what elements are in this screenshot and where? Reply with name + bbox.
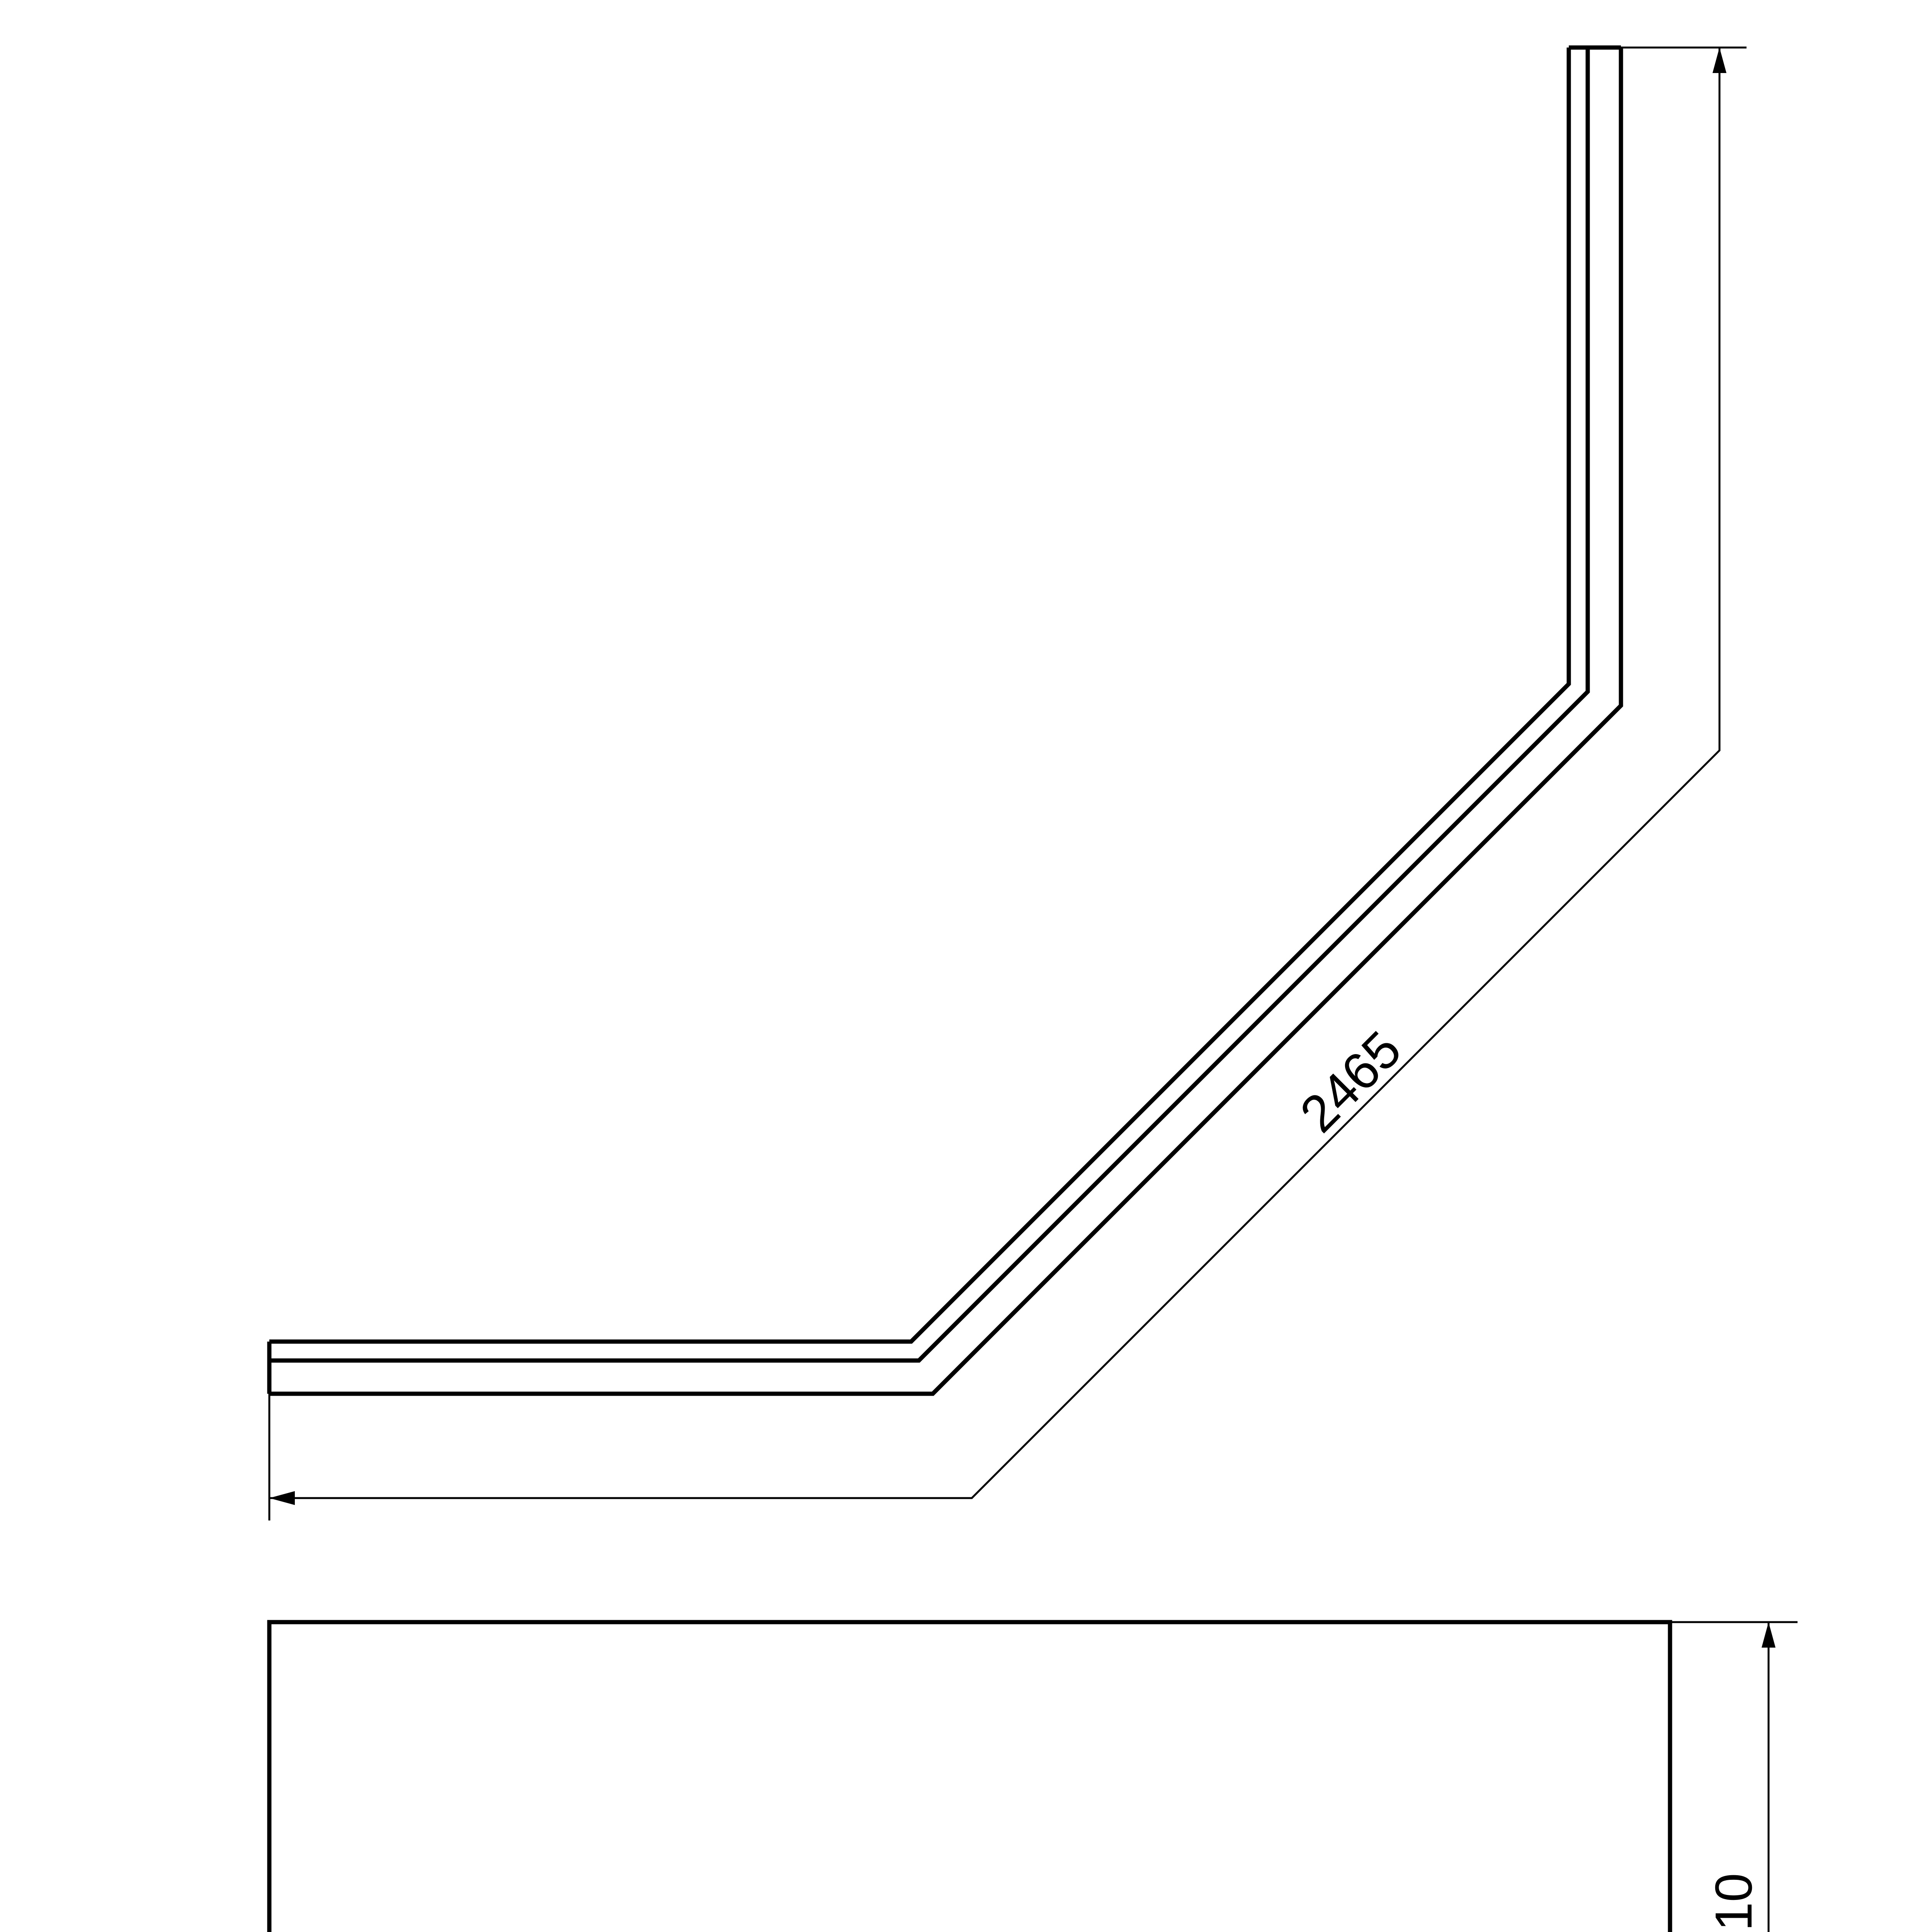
plan-dimension-line (269, 48, 1719, 1498)
plan-band-outer-line (269, 48, 1621, 1394)
plan-band-middle-line (269, 48, 1588, 1361)
plan-length-label: 2465 (1289, 1020, 1412, 1143)
plan-view: 2465 (269, 48, 1747, 1520)
plan-band-inner-line (269, 48, 1569, 1342)
technical-drawing: 2465 610 35 510 (0, 0, 1932, 1932)
front-height-label: 610 (1704, 1873, 1763, 1932)
front-elevation: 610 (269, 1622, 1798, 1932)
front-dim-arrowhead-top (1762, 1622, 1776, 1648)
front-panel-outline (269, 1622, 1670, 1932)
plan-dim-arrowhead-top (1713, 48, 1726, 73)
plan-dim-arrowhead-left (269, 1491, 295, 1505)
